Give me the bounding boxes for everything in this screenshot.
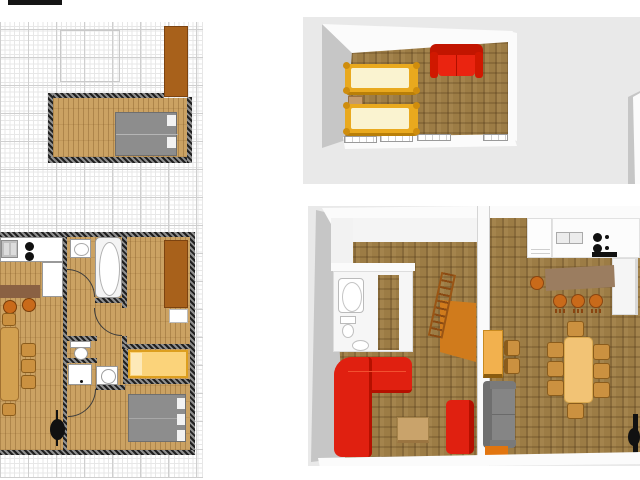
chair[interactable]	[21, 359, 36, 373]
wall	[96, 385, 125, 390]
sofa-seat	[492, 389, 515, 440]
bar-stool	[530, 276, 544, 290]
pellet-stove[interactable]	[50, 419, 65, 440]
kitchen-sink	[556, 232, 583, 244]
burner-small	[605, 235, 609, 239]
single-bed	[345, 104, 418, 136]
floor-plan-app: { "app": {"type": "home-design-viewer", …	[0, 0, 640, 480]
dining-table	[564, 337, 593, 403]
pillow	[131, 353, 142, 375]
sofa-arm	[430, 52, 438, 78]
washbasin-counter[interactable]	[68, 364, 92, 385]
coffee-table	[397, 417, 429, 443]
corner-sofa-seat-line	[348, 371, 406, 372]
toilet-bowl[interactable]	[74, 347, 88, 360]
toilet	[340, 316, 356, 324]
chair	[547, 380, 564, 396]
wall	[0, 450, 195, 455]
bar-stool	[571, 294, 585, 308]
wall	[123, 344, 190, 349]
chair	[567, 321, 584, 337]
wc-floor	[378, 275, 399, 350]
cooktop[interactable]	[20, 239, 42, 262]
mattress	[351, 68, 409, 88]
chair	[504, 340, 520, 356]
burner	[25, 252, 34, 261]
chair	[593, 344, 610, 360]
tall-cabinet	[612, 258, 638, 315]
washbasin	[352, 340, 369, 351]
window	[344, 136, 377, 143]
double-bed-gray[interactable]	[128, 394, 186, 442]
mattress	[351, 108, 409, 129]
bar-stool	[553, 294, 567, 308]
chair[interactable]	[21, 375, 36, 389]
dining-table[interactable]	[0, 327, 19, 401]
burner	[25, 242, 34, 251]
kitchen-sink[interactable]	[1, 240, 18, 258]
chair[interactable]	[2, 313, 16, 326]
chair	[547, 361, 564, 377]
chair[interactable]	[2, 403, 16, 416]
window	[483, 134, 508, 141]
oven-front	[592, 252, 617, 257]
wall	[123, 379, 190, 384]
bar-stool[interactable]	[3, 300, 17, 314]
view-3d-upstairs[interactable]	[303, 17, 640, 184]
bathtub	[338, 278, 364, 313]
burner-small	[605, 246, 609, 250]
wall	[190, 232, 195, 455]
wall	[95, 298, 125, 303]
burner	[593, 233, 602, 242]
sofa-arm	[475, 52, 483, 78]
stool-legs	[573, 309, 583, 313]
pillow	[177, 398, 185, 409]
sink-basin	[11, 243, 16, 255]
plan-2d[interactable]	[0, 0, 213, 480]
bar-stool	[589, 294, 603, 308]
single-bed	[345, 64, 418, 95]
bathtub[interactable]	[95, 237, 122, 298]
pillow	[177, 414, 185, 425]
chair[interactable]	[21, 343, 36, 357]
sofa-seat	[438, 55, 475, 76]
drum	[101, 369, 116, 384]
stool-legs	[555, 309, 565, 313]
sofa-back	[483, 381, 492, 448]
washbasin[interactable]	[70, 239, 91, 258]
wardrobe[interactable]	[164, 240, 188, 308]
wall-north-right	[490, 206, 640, 218]
sink-basin	[4, 243, 9, 255]
loveseat-red	[446, 400, 474, 454]
chair	[593, 382, 610, 398]
fridge-cabinet	[527, 218, 552, 258]
single-bed-yellow[interactable]	[128, 350, 188, 378]
yellow-dresser	[483, 330, 503, 378]
wall-corridor	[331, 263, 415, 271]
sofa-gray	[483, 381, 518, 448]
shelf[interactable]	[169, 309, 188, 323]
wall-face	[353, 218, 477, 242]
pillow	[177, 430, 185, 441]
chair	[593, 363, 610, 379]
tub-basin	[99, 242, 120, 296]
corner-sofa-arm-left	[334, 357, 372, 457]
bathroom-block	[333, 271, 413, 352]
chair	[567, 403, 584, 419]
toilet-bowl	[342, 324, 354, 338]
wood-stove	[628, 428, 640, 446]
washing-machine[interactable]	[96, 366, 118, 385]
stool-legs	[591, 309, 601, 313]
bar-counter[interactable]	[0, 285, 40, 298]
wall-corner	[331, 218, 353, 263]
sofa-red	[430, 44, 483, 78]
window	[417, 134, 451, 141]
window	[380, 135, 413, 142]
main-floor	[0, 0, 213, 480]
view-3d-main-floor[interactable]	[308, 206, 640, 466]
sofa-arm	[490, 381, 516, 389]
kitchen-counter-side[interactable]	[42, 262, 63, 297]
chair	[504, 358, 520, 374]
bar-stool[interactable]	[22, 298, 36, 312]
tub-basin	[342, 282, 362, 312]
chair	[547, 342, 564, 358]
drain	[80, 380, 83, 383]
basin	[74, 243, 89, 256]
